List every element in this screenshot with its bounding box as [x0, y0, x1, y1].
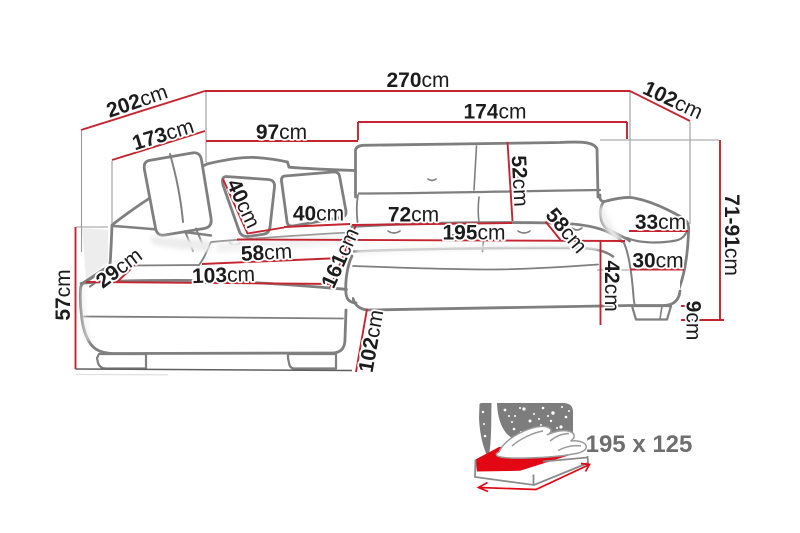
- svg-text:174cm: 174cm: [463, 101, 526, 124]
- svg-text:97cm: 97cm: [256, 121, 307, 144]
- svg-text:72cm: 72cm: [388, 204, 439, 227]
- svg-text:40cm: 40cm: [293, 203, 344, 226]
- svg-text:58cm: 58cm: [240, 240, 292, 266]
- svg-text:103cm: 103cm: [192, 263, 256, 288]
- svg-text:33cm: 33cm: [635, 211, 686, 234]
- svg-text:195 x 125: 195 x 125: [586, 431, 693, 458]
- svg-text:57cm: 57cm: [52, 269, 75, 320]
- svg-text:270cm: 270cm: [386, 69, 449, 92]
- svg-text:42cm: 42cm: [600, 260, 623, 311]
- svg-text:9cm: 9cm: [682, 301, 705, 341]
- svg-text:71-91cm: 71-91cm: [720, 194, 743, 276]
- svg-text:52cm: 52cm: [507, 155, 533, 207]
- svg-text:30cm: 30cm: [632, 250, 683, 273]
- svg-text:195cm: 195cm: [442, 222, 505, 245]
